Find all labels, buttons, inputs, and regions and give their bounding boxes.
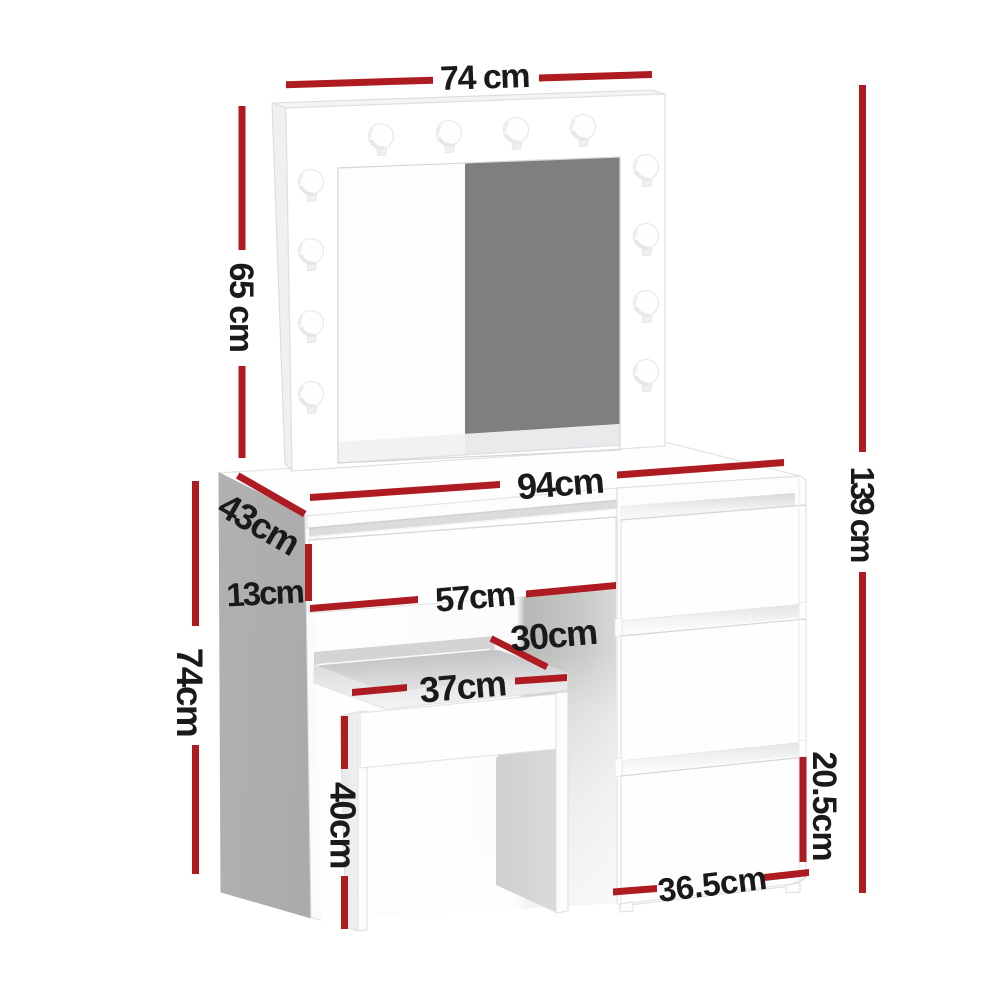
svg-text:65 cm: 65 cm bbox=[222, 263, 260, 352]
svg-text:57cm: 57cm bbox=[434, 575, 517, 620]
svg-text:37cm: 37cm bbox=[418, 662, 507, 710]
svg-text:20.5cm: 20.5cm bbox=[805, 751, 843, 860]
svg-text:74cm: 74cm bbox=[169, 648, 210, 737]
svg-text:139 cm: 139 cm bbox=[844, 467, 881, 563]
svg-text:13cm: 13cm bbox=[225, 572, 304, 613]
svg-text:40cm: 40cm bbox=[323, 782, 364, 868]
svg-text:94cm: 94cm bbox=[516, 460, 605, 508]
svg-text:30cm: 30cm bbox=[509, 611, 598, 659]
svg-text:74 cm: 74 cm bbox=[439, 57, 529, 98]
